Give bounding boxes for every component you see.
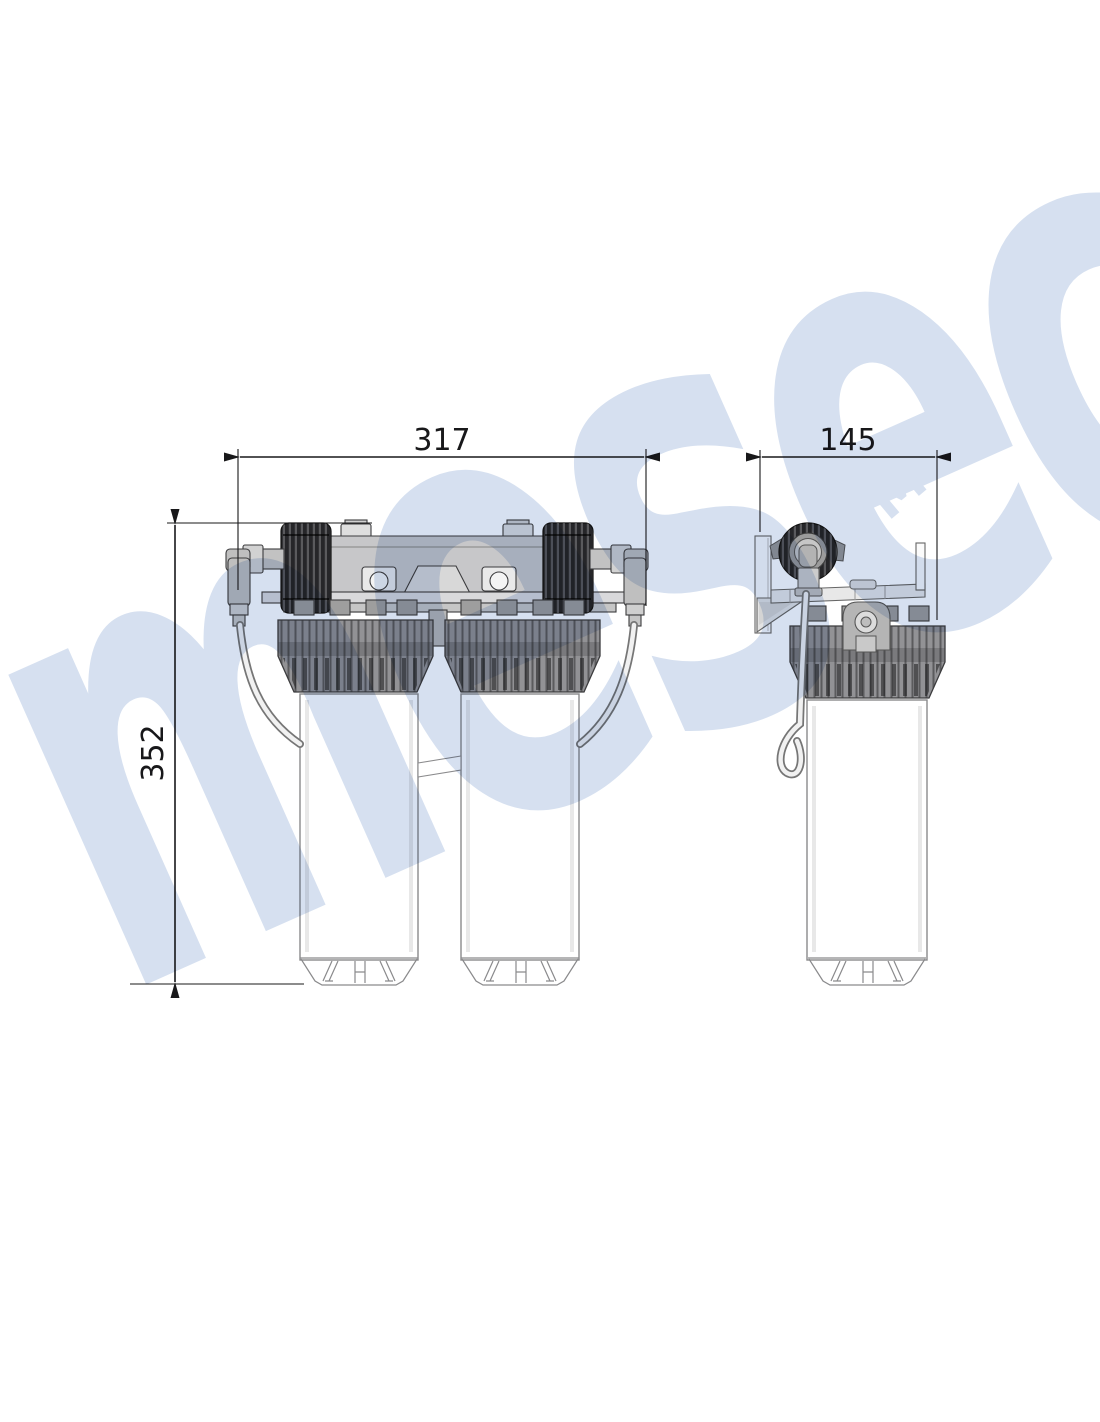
technical-drawing: 317 145 352 mesec BM — [0, 0, 1100, 1422]
watermark: mesec BM — [0, 0, 1100, 1131]
watermark-text: mesec — [0, 0, 1100, 1131]
side-housing-feet — [808, 958, 926, 985]
drawing-canvas: 317 145 352 mesec BM — [0, 0, 1100, 1422]
